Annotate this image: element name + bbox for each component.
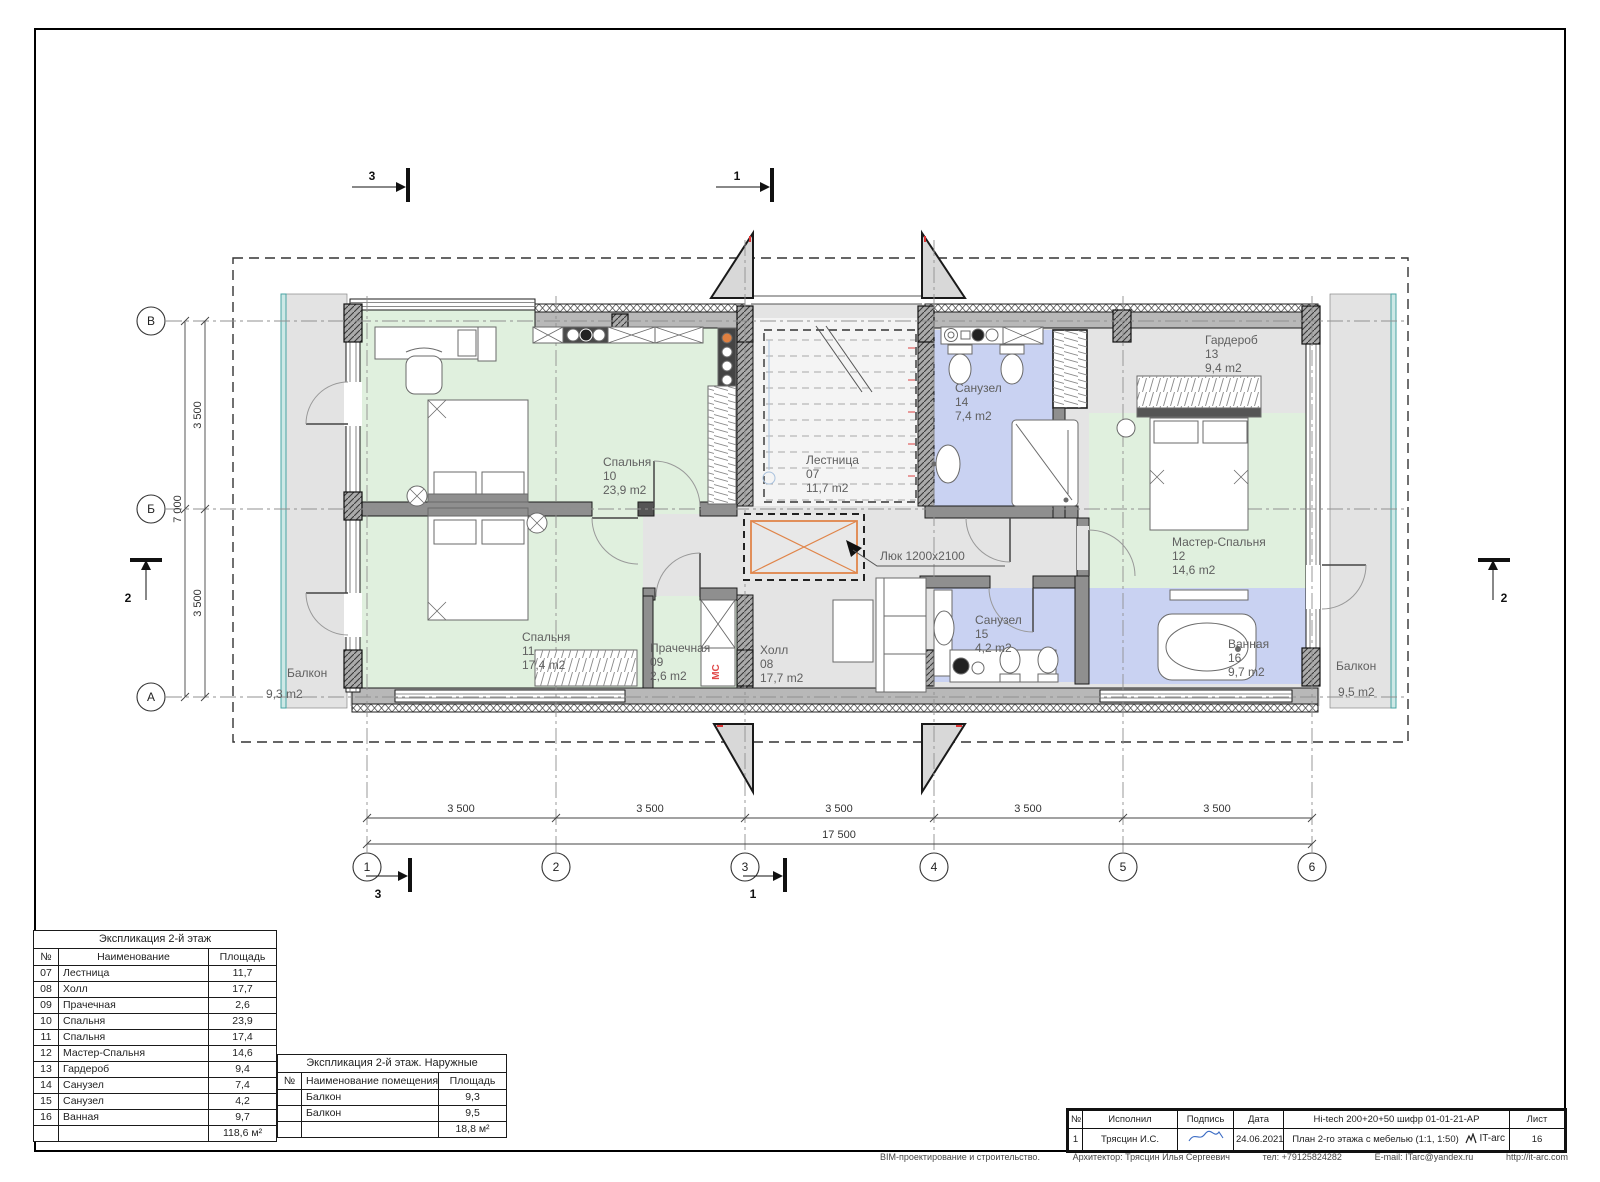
room-hall-area: 17,7 m2 <box>760 671 804 685</box>
room-bath-area: 9,7 m2 <box>1228 665 1265 679</box>
dim-span-4: 3 500 <box>1014 803 1042 815</box>
titleblock-header-num: № <box>1069 1111 1083 1129</box>
room-wc14-num: 14 <box>955 395 969 409</box>
drawing-sheet: 3 500 3 500 3 500 3 500 3 500 17 500 3 5… <box>0 0 1600 1182</box>
room-bedroom10-area: 23,9 m2 <box>603 483 647 497</box>
room-master-num: 12 <box>1172 549 1186 563</box>
table-total-row: 18,8 м² <box>278 1122 507 1138</box>
dim-vspan-2: 3 500 <box>192 589 204 617</box>
dim-total-width: 17 500 <box>822 829 856 841</box>
room-master-area: 14,6 m2 <box>1172 563 1216 577</box>
dim-vspan-1: 3 500 <box>192 401 204 429</box>
section-label-top-3: 3 <box>369 169 376 183</box>
table-row: 07Лестница11,7 <box>34 966 277 982</box>
room-laundry-num: 09 <box>650 655 664 669</box>
titleblock-doc-title: План 2-го этажа с мебелью (1:1, 1:50) <box>1292 1134 1459 1145</box>
room-wc15-name: Санузел <box>975 613 1022 627</box>
table-row: 09Прачечная2,6 <box>34 998 277 1014</box>
axis-row-v: В <box>147 314 155 328</box>
hatch-label: Люк 1200х2100 <box>880 549 965 563</box>
logo-text: IT-arc <box>1479 1130 1505 1147</box>
col-header-num: № <box>278 1073 302 1090</box>
company-logo: IT-arc <box>1465 1130 1505 1147</box>
room-bedroom11-area: 17,4 m2 <box>522 658 566 672</box>
room-bedroom10-name: Спальня <box>603 455 651 469</box>
washing-machine-label: МС <box>711 664 722 680</box>
titleblock-header-signature: Подпись <box>1178 1111 1234 1129</box>
footer-phone: тел: +79125824282 <box>1263 1152 1342 1162</box>
titleblock-executor: Трясцин И.С. <box>1083 1129 1178 1151</box>
axis-col-6: 6 <box>1309 860 1316 874</box>
footer-architect: Архитектор: Трясцин Илья Сергеевич <box>1073 1152 1230 1162</box>
titleblock-header-executor: Исполнил <box>1083 1111 1178 1129</box>
room-wardrobe-num: 13 <box>1205 347 1219 361</box>
titleblock-date: 24.06.2021 <box>1234 1129 1284 1151</box>
room-bath-num: 16 <box>1228 651 1242 665</box>
room-wc15-num: 15 <box>975 627 989 641</box>
table-row: 13Гардероб9,4 <box>34 1062 277 1078</box>
room-balcony-left-name: Балкон <box>287 666 327 680</box>
table-main-title: Экспликация 2-й этаж <box>34 931 277 949</box>
table-total-row: 118,6 м² <box>34 1126 277 1142</box>
table-outer-total: 18,8 м² <box>439 1122 507 1138</box>
col-header-num: № <box>34 949 59 966</box>
axis-col-3: 3 <box>742 860 749 874</box>
section-label-left-2: 2 <box>125 591 132 605</box>
section-label-bottom-1: 1 <box>750 887 757 901</box>
col-header-name: Наименование помещения <box>302 1073 439 1090</box>
room-stairs-num: 07 <box>806 467 820 481</box>
room-bedroom11-num: 11 <box>522 644 535 658</box>
room-wc14-name: Санузел <box>955 381 1002 395</box>
col-header-name: Наименование <box>59 949 209 966</box>
footer-email: E-mail: ITarc@yandex.ru <box>1375 1152 1474 1162</box>
table-row: 11Спальня17,4 <box>34 1030 277 1046</box>
room-bath-name: Ванная <box>1228 637 1269 651</box>
axis-col-2: 2 <box>553 860 560 874</box>
room-balcony-right-area: 9,5 m2 <box>1338 685 1375 699</box>
room-bedroom11-name: Спальня <box>522 630 570 644</box>
room-laundry-area: 2,6 m2 <box>650 669 687 683</box>
room-balcony-right-name: Балкон <box>1336 659 1376 673</box>
room-hall-name: Холл <box>760 643 788 657</box>
room-master-name: Мастер-Спальня <box>1172 535 1266 549</box>
room-balcony-left-area: 9,3 m2 <box>266 687 303 701</box>
axis-row-b: Б <box>147 502 155 516</box>
dim-span-3: 3 500 <box>825 803 853 815</box>
table-row: 16Ванная9,7 <box>34 1110 277 1126</box>
table-row: 10Спальня23,9 <box>34 1014 277 1030</box>
balcony-left <box>281 294 347 708</box>
axis-col-5: 5 <box>1120 860 1127 874</box>
dim-span-2: 3 500 <box>636 803 664 815</box>
room-laundry-name: Прачечная <box>650 641 710 655</box>
col-header-area: Площадь <box>439 1073 507 1090</box>
dim-span-1: 3 500 <box>447 803 475 815</box>
explication-table-outer: Экспликация 2-й этаж. Наружные № Наимено… <box>277 1054 507 1138</box>
table-row: 14Санузел7,4 <box>34 1078 277 1094</box>
table-row: 15Санузел4,2 <box>34 1094 277 1110</box>
balcony-right <box>1330 294 1396 708</box>
table-row: 08Холл17,7 <box>34 982 277 998</box>
title-block: № Исполнил Подпись Дата Hi-tech 200+20+5… <box>1068 1110 1565 1151</box>
signature-scribble <box>1186 1129 1226 1144</box>
titleblock-project-code: Hi-tech 200+20+50 шифр 01-01-21-АР <box>1284 1111 1510 1129</box>
room-stairs-name: Лестница <box>806 453 859 467</box>
room-bedroom10-num: 10 <box>603 469 617 483</box>
titleblock-header-date: Дата <box>1234 1111 1284 1129</box>
titleblock-header-sheet: Лист <box>1510 1111 1565 1129</box>
explication-table-main: Экспликация 2-й этаж № Наименование Площ… <box>33 930 277 1142</box>
room-wardrobe-name: Гардероб <box>1205 333 1258 347</box>
footer-contacts: BIM-проектирование и строительство. Архи… <box>880 1152 1568 1162</box>
room-wardrobe-area: 9,4 m2 <box>1205 361 1242 375</box>
dim-span-5: 3 500 <box>1203 803 1231 815</box>
titleblock-sheet-number: 16 <box>1510 1129 1565 1151</box>
table-row: Балкон9,5 <box>278 1106 507 1122</box>
table-row: Балкон9,3 <box>278 1090 507 1106</box>
dim-total-height: 7 000 <box>172 495 184 523</box>
mountain-logo-icon <box>1465 1133 1477 1144</box>
room-stairs-area: 11,7 m2 <box>806 481 849 495</box>
room-hall-num: 08 <box>760 657 774 671</box>
footer-company: BIM-проектирование и строительство. <box>880 1152 1040 1162</box>
table-main-total: 118,6 м² <box>209 1126 277 1142</box>
section-label-right-2: 2 <box>1501 591 1508 605</box>
section-label-bottom-3: 3 <box>375 887 382 901</box>
col-header-area: Площадь <box>209 949 277 966</box>
signature-cell <box>1178 1129 1234 1151</box>
axis-col-1: 1 <box>364 860 371 874</box>
footer-site: http://it-arc.com <box>1506 1152 1568 1162</box>
room-wc15-area: 4,2 m2 <box>975 641 1012 655</box>
axis-row-a: А <box>147 690 155 704</box>
table-outer-title: Экспликация 2-й этаж. Наружные <box>278 1055 507 1073</box>
table-row: 12Мастер-Спальня14,6 <box>34 1046 277 1062</box>
room-wc14-area: 7,4 m2 <box>955 409 992 423</box>
section-label-top-1: 1 <box>734 169 741 183</box>
titleblock-row-num: 1 <box>1069 1129 1083 1151</box>
axis-col-4: 4 <box>931 860 938 874</box>
